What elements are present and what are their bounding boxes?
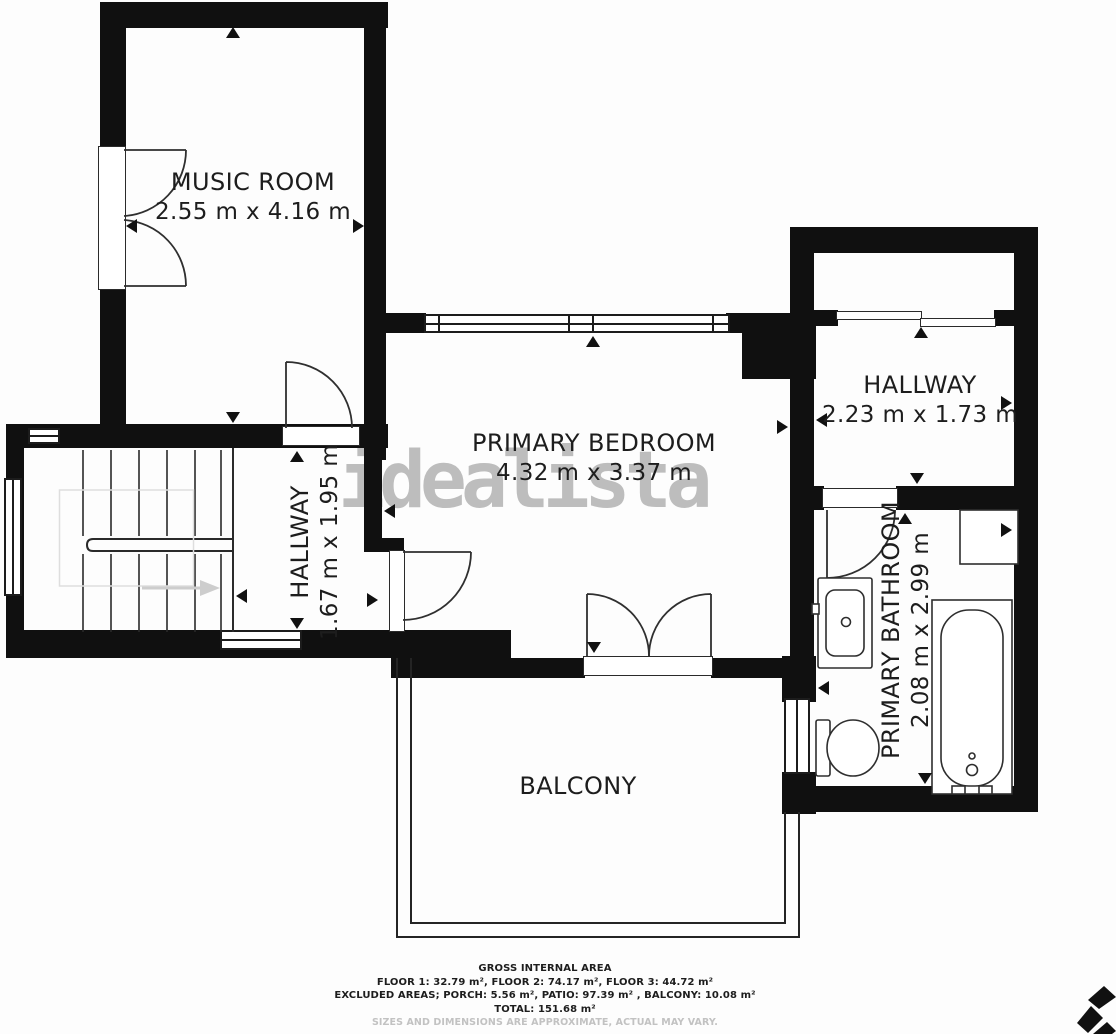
room-label-music-room: MUSIC ROOM 2.55 m x 4.16 m <box>155 167 351 227</box>
room-name: PRIMARY BATHROOM <box>876 501 906 759</box>
footer-excluded: EXCLUDED AREAS; PORCH: 5.56 m², PATIO: 9… <box>295 989 795 1003</box>
toilet <box>816 720 879 776</box>
staircase <box>60 448 234 632</box>
door-hall-to-bedroom <box>403 552 471 620</box>
room-label-hallway-left: HALLWAY 1.67 m x 1.95 m <box>285 444 345 640</box>
room-name: HALLWAY <box>285 444 315 640</box>
footer-total: TOTAL: 151.68 m² <box>295 1003 795 1017</box>
room-dims: 2.08 m x 2.99 m <box>906 501 936 759</box>
footer-disclaimer: SIZES AND DIMENSIONS ARE APPROXIMATE, AC… <box>295 1016 795 1030</box>
footer-title: GROSS INTERNAL AREA <box>295 962 795 976</box>
room-dims: 2.55 m x 4.16 m <box>155 197 351 227</box>
room-label-primary-bathroom: PRIMARY BATHROOM 2.08 m x 2.99 m <box>876 501 936 759</box>
room-name: HALLWAY <box>822 370 1018 400</box>
room-name: MUSIC ROOM <box>155 167 351 197</box>
stairs-direction-arrow <box>142 580 220 596</box>
footer-floors: FLOOR 1: 32.79 m², FLOOR 2: 74.17 m², FL… <box>295 976 795 990</box>
room-dims: 1.67 m x 1.95 m <box>315 444 345 640</box>
corner-logo <box>1077 986 1116 1034</box>
shower-shelf <box>960 510 1018 564</box>
room-dims: 2.23 m x 1.73 m <box>822 400 1018 430</box>
door-balcony-french <box>587 594 711 656</box>
room-label-balcony: BALCONY <box>519 771 636 801</box>
bathtub <box>932 600 1012 794</box>
room-label-hallway-right: HALLWAY 2.23 m x 1.73 m <box>822 370 1018 430</box>
footer-area-summary: GROSS INTERNAL AREA FLOOR 1: 32.79 m², F… <box>295 962 795 1030</box>
room-label-primary-bedroom: PRIMARY BEDROOM 4.32 m x 3.37 m <box>472 428 716 488</box>
room-name: BALCONY <box>519 771 636 801</box>
room-dims: 4.32 m x 3.37 m <box>472 458 716 488</box>
floor-plan: idealista <box>0 0 1116 1034</box>
room-name: PRIMARY BEDROOM <box>472 428 716 458</box>
door-music-room <box>286 362 352 428</box>
bathroom-sink <box>812 578 872 668</box>
